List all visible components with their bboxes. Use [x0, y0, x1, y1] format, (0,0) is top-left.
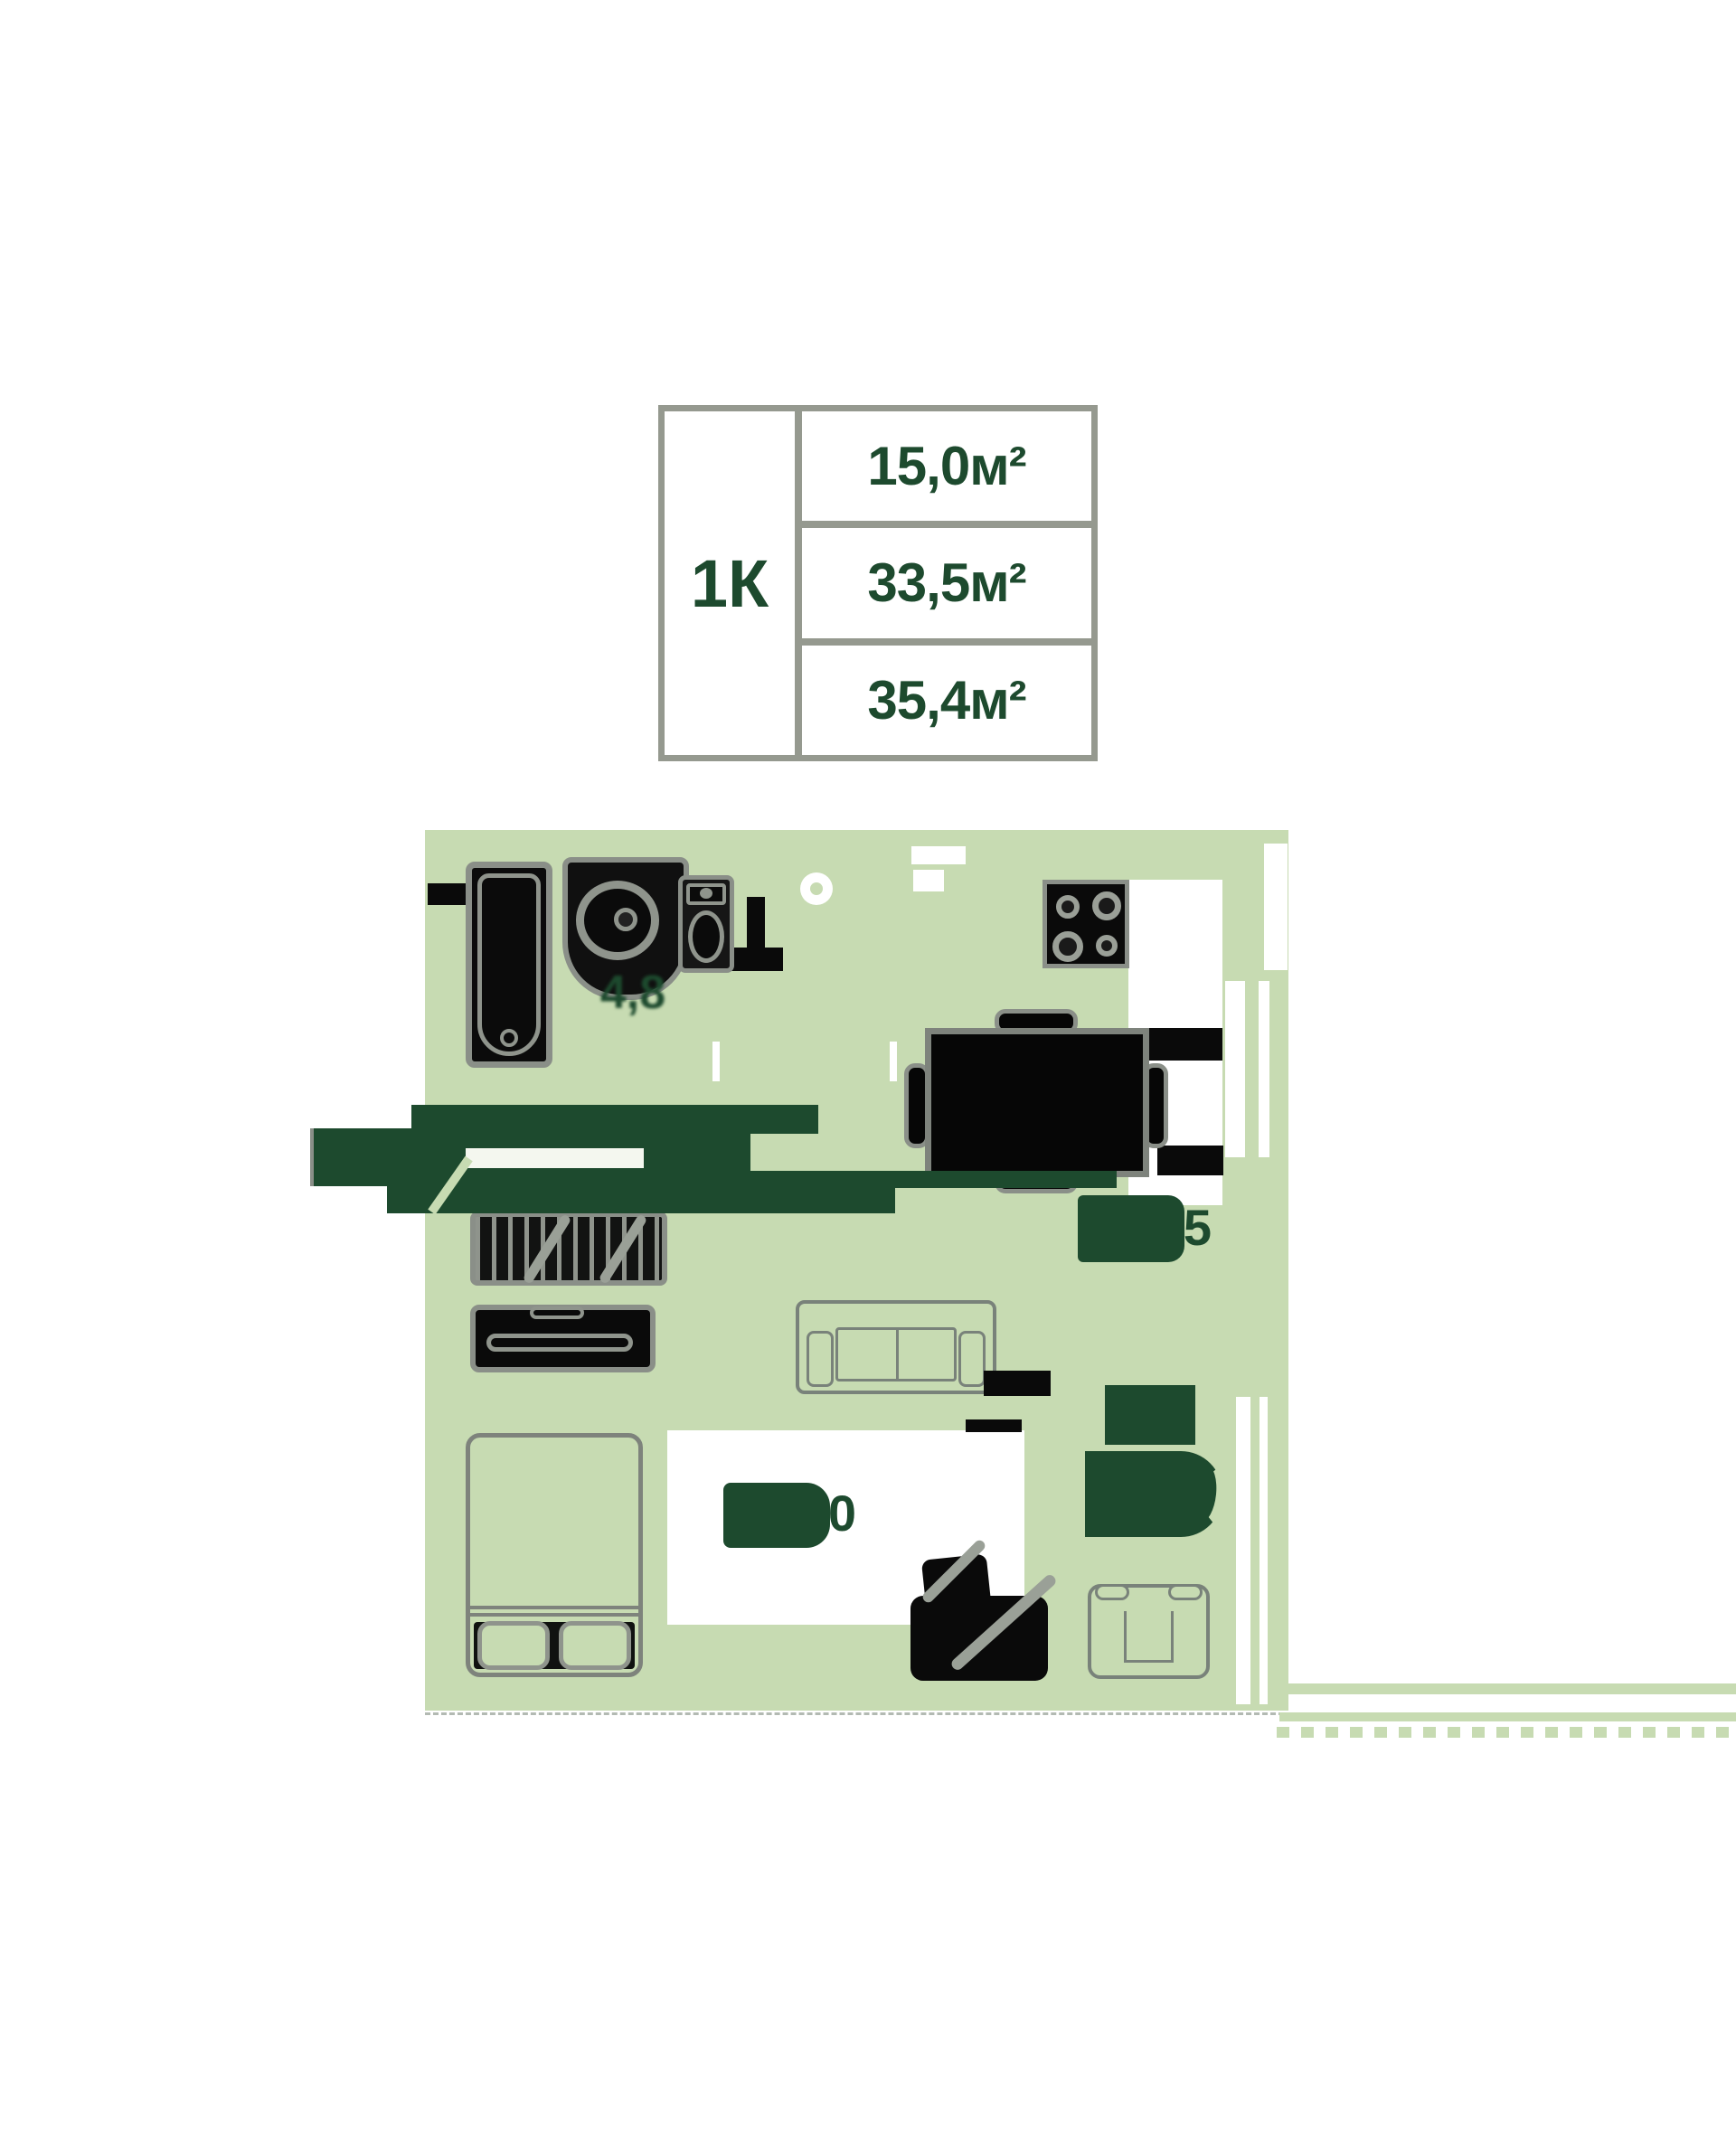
bathroom-area-label: 4,8 — [570, 964, 696, 1022]
bathtub — [466, 862, 552, 1068]
window-right-lower — [1236, 1397, 1250, 1704]
shadow-scrap — [1148, 1028, 1222, 1061]
floor-plan-card: 1К 15,0м² 33,5м² 35,4м² — [0, 0, 1736, 2150]
burner — [1052, 931, 1083, 962]
wardrobe-hatch — [599, 1213, 648, 1285]
living-area-value: 33,5м² — [867, 552, 1025, 614]
balcony-strip — [1279, 1683, 1736, 1694]
total-area-value: 35,4м² — [867, 669, 1025, 731]
dresser-tab — [530, 1306, 584, 1319]
dining-table — [925, 1028, 1149, 1177]
burner — [1056, 895, 1080, 919]
smudge-over-bedroom-label — [723, 1483, 830, 1548]
wardrobe — [470, 1212, 667, 1286]
floor-plan: 4,8 15,5 15,0 — [425, 830, 1288, 1711]
smudge-edge-line — [310, 1128, 314, 1186]
armchair — [1088, 1584, 1210, 1679]
double-bed — [466, 1433, 643, 1677]
cooktop — [1043, 880, 1129, 968]
dresser — [470, 1305, 656, 1372]
entry-door-gap — [911, 846, 966, 864]
unit-type-cell: 1К — [665, 411, 802, 755]
shadow-scrap — [747, 897, 765, 949]
armchair-seat — [1124, 1611, 1174, 1663]
window-right-lower-pane — [1260, 1397, 1268, 1704]
wall-tick — [890, 1042, 897, 1081]
sofa-seat-divider — [896, 1330, 899, 1379]
washbasin-faucet — [614, 908, 637, 931]
plan-bottom-dashed-line — [425, 1712, 1284, 1715]
unit-type-label: 1К — [691, 545, 769, 622]
smudge-artifact — [750, 1171, 1117, 1188]
pillow — [477, 1621, 550, 1670]
entry-door-gap-2 — [913, 870, 944, 891]
sofa-seats — [835, 1327, 957, 1381]
toilet-button — [700, 888, 712, 899]
sofa-armrest — [958, 1331, 986, 1387]
wardrobe-hatch — [523, 1213, 572, 1285]
shadow-scrap — [1157, 1146, 1223, 1175]
pillow — [559, 1621, 631, 1670]
shadow-scrap — [731, 948, 783, 971]
smudge-gap — [466, 1148, 644, 1168]
area-row-total: 35,4м² — [802, 646, 1091, 755]
toilet-bowl — [688, 910, 724, 963]
toilet — [678, 875, 734, 973]
wall-tick — [712, 1042, 720, 1081]
window-right-upper-pane — [1259, 981, 1269, 1157]
dresser-handle — [486, 1334, 633, 1352]
shadow-scrap — [428, 883, 467, 905]
balcony-strip — [1279, 1712, 1736, 1721]
door-pivot-dot — [810, 882, 823, 895]
armchair-shoulder — [1168, 1584, 1203, 1600]
bed-blanket-line — [470, 1606, 638, 1617]
sofa-armrest — [807, 1331, 834, 1387]
door-pivot-mark — [800, 872, 833, 905]
area-rows: 15,0м² 33,5м² 35,4м² — [802, 411, 1091, 755]
smudge-over-washer-label — [1105, 1385, 1195, 1445]
spec-table: 1К 15,0м² 33,5м² 35,4м² — [658, 405, 1098, 761]
window-right-upper — [1225, 981, 1245, 1157]
balcony-dotted-line — [1277, 1727, 1736, 1738]
room-area-value: 15,0м² — [867, 435, 1025, 497]
area-row-room: 15,0м² — [802, 411, 1091, 528]
shadow-scrap — [966, 1419, 1022, 1432]
bathtub-drain — [500, 1029, 518, 1047]
burner — [1092, 891, 1121, 920]
smudge-over-kitchen-label — [1078, 1195, 1184, 1262]
area-row-living: 33,5м² — [802, 528, 1091, 645]
wall-gap — [1264, 844, 1288, 970]
armchair-shoulder — [1095, 1584, 1129, 1600]
bed-pillow-zone — [474, 1622, 635, 1669]
side-table — [984, 1371, 1051, 1396]
burner — [1096, 935, 1118, 957]
desk-with-chair — [910, 1553, 1078, 1684]
sofa — [796, 1300, 996, 1394]
